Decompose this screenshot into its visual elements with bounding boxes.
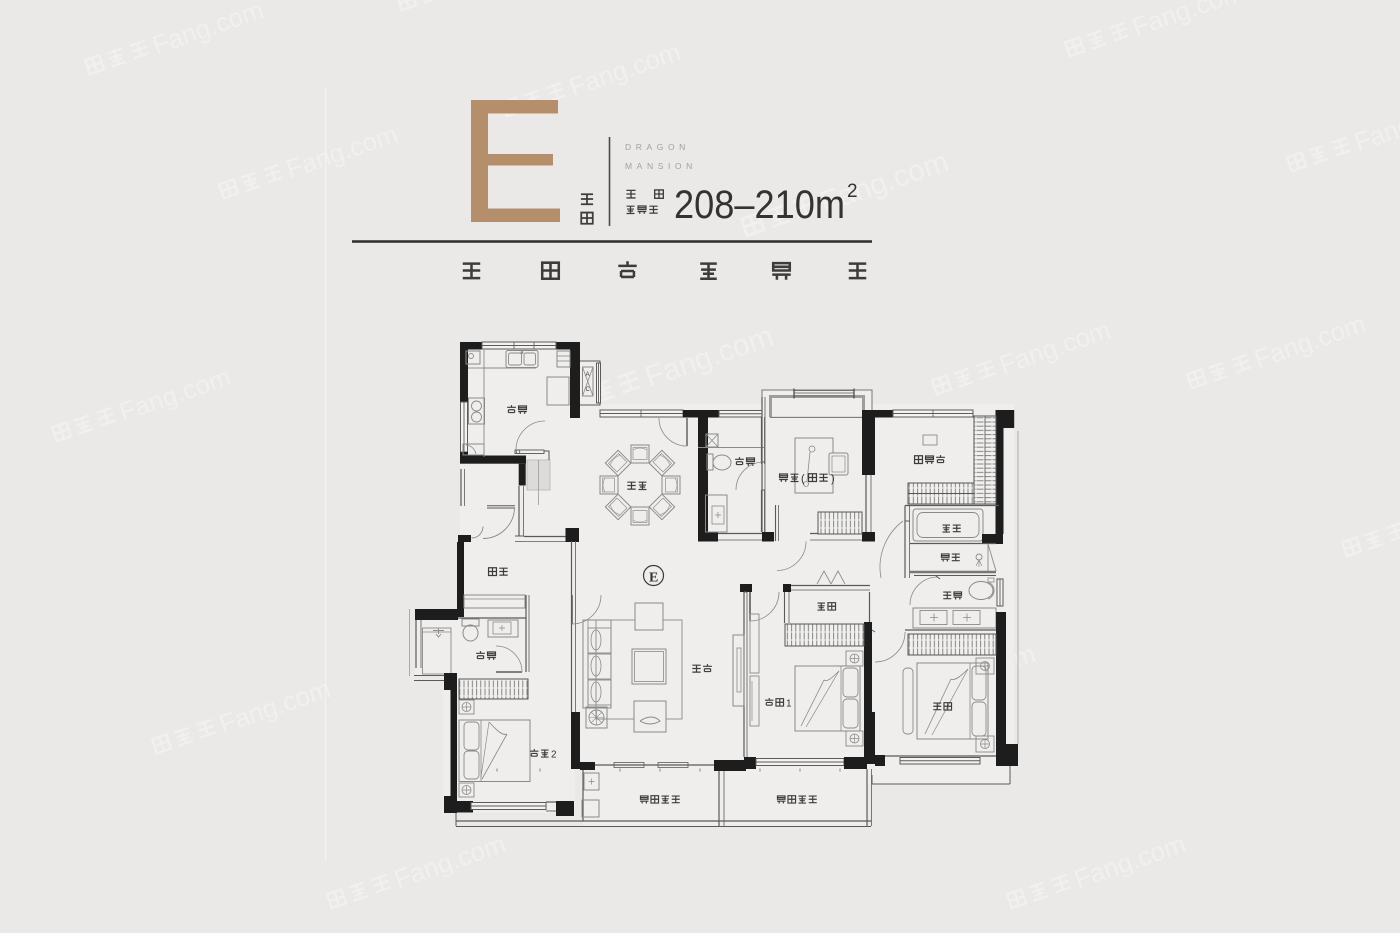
svg-text:1: 1 — [786, 699, 792, 710]
svg-text:Fang.com: Fang.com — [282, 118, 401, 184]
svg-text:E: E — [649, 571, 658, 586]
svg-text:): ) — [831, 473, 835, 485]
svg-text:2: 2 — [847, 181, 858, 202]
svg-text:Fang.com: Fang.com — [565, 36, 684, 102]
svg-text:A: A — [586, 372, 590, 378]
svg-text:C: C — [586, 387, 591, 393]
svg-text:208–210m: 208–210m — [674, 183, 845, 227]
svg-text:Fang.com: Fang.com — [115, 361, 234, 427]
svg-text:Fang.com: Fang.com — [641, 320, 778, 395]
svg-text:Fang.com: Fang.com — [390, 828, 509, 894]
svg-text:MANSION: MANSION — [625, 161, 697, 171]
svg-text:Fang.com: Fang.com — [995, 314, 1114, 380]
svg-text:(: ( — [801, 473, 805, 485]
svg-text:Fang.com: Fang.com — [215, 673, 334, 739]
svg-text:Fang.com: Fang.com — [148, 0, 267, 60]
svg-text:Fang.com: Fang.com — [1250, 308, 1369, 374]
svg-text:2: 2 — [551, 750, 557, 761]
svg-text:Fang.com: Fang.com — [1128, 0, 1247, 42]
svg-text:Fang.com: Fang.com — [1350, 91, 1400, 157]
svg-text:DRAGON: DRAGON — [625, 142, 690, 152]
svg-text:Fang.com: Fang.com — [1070, 828, 1189, 894]
